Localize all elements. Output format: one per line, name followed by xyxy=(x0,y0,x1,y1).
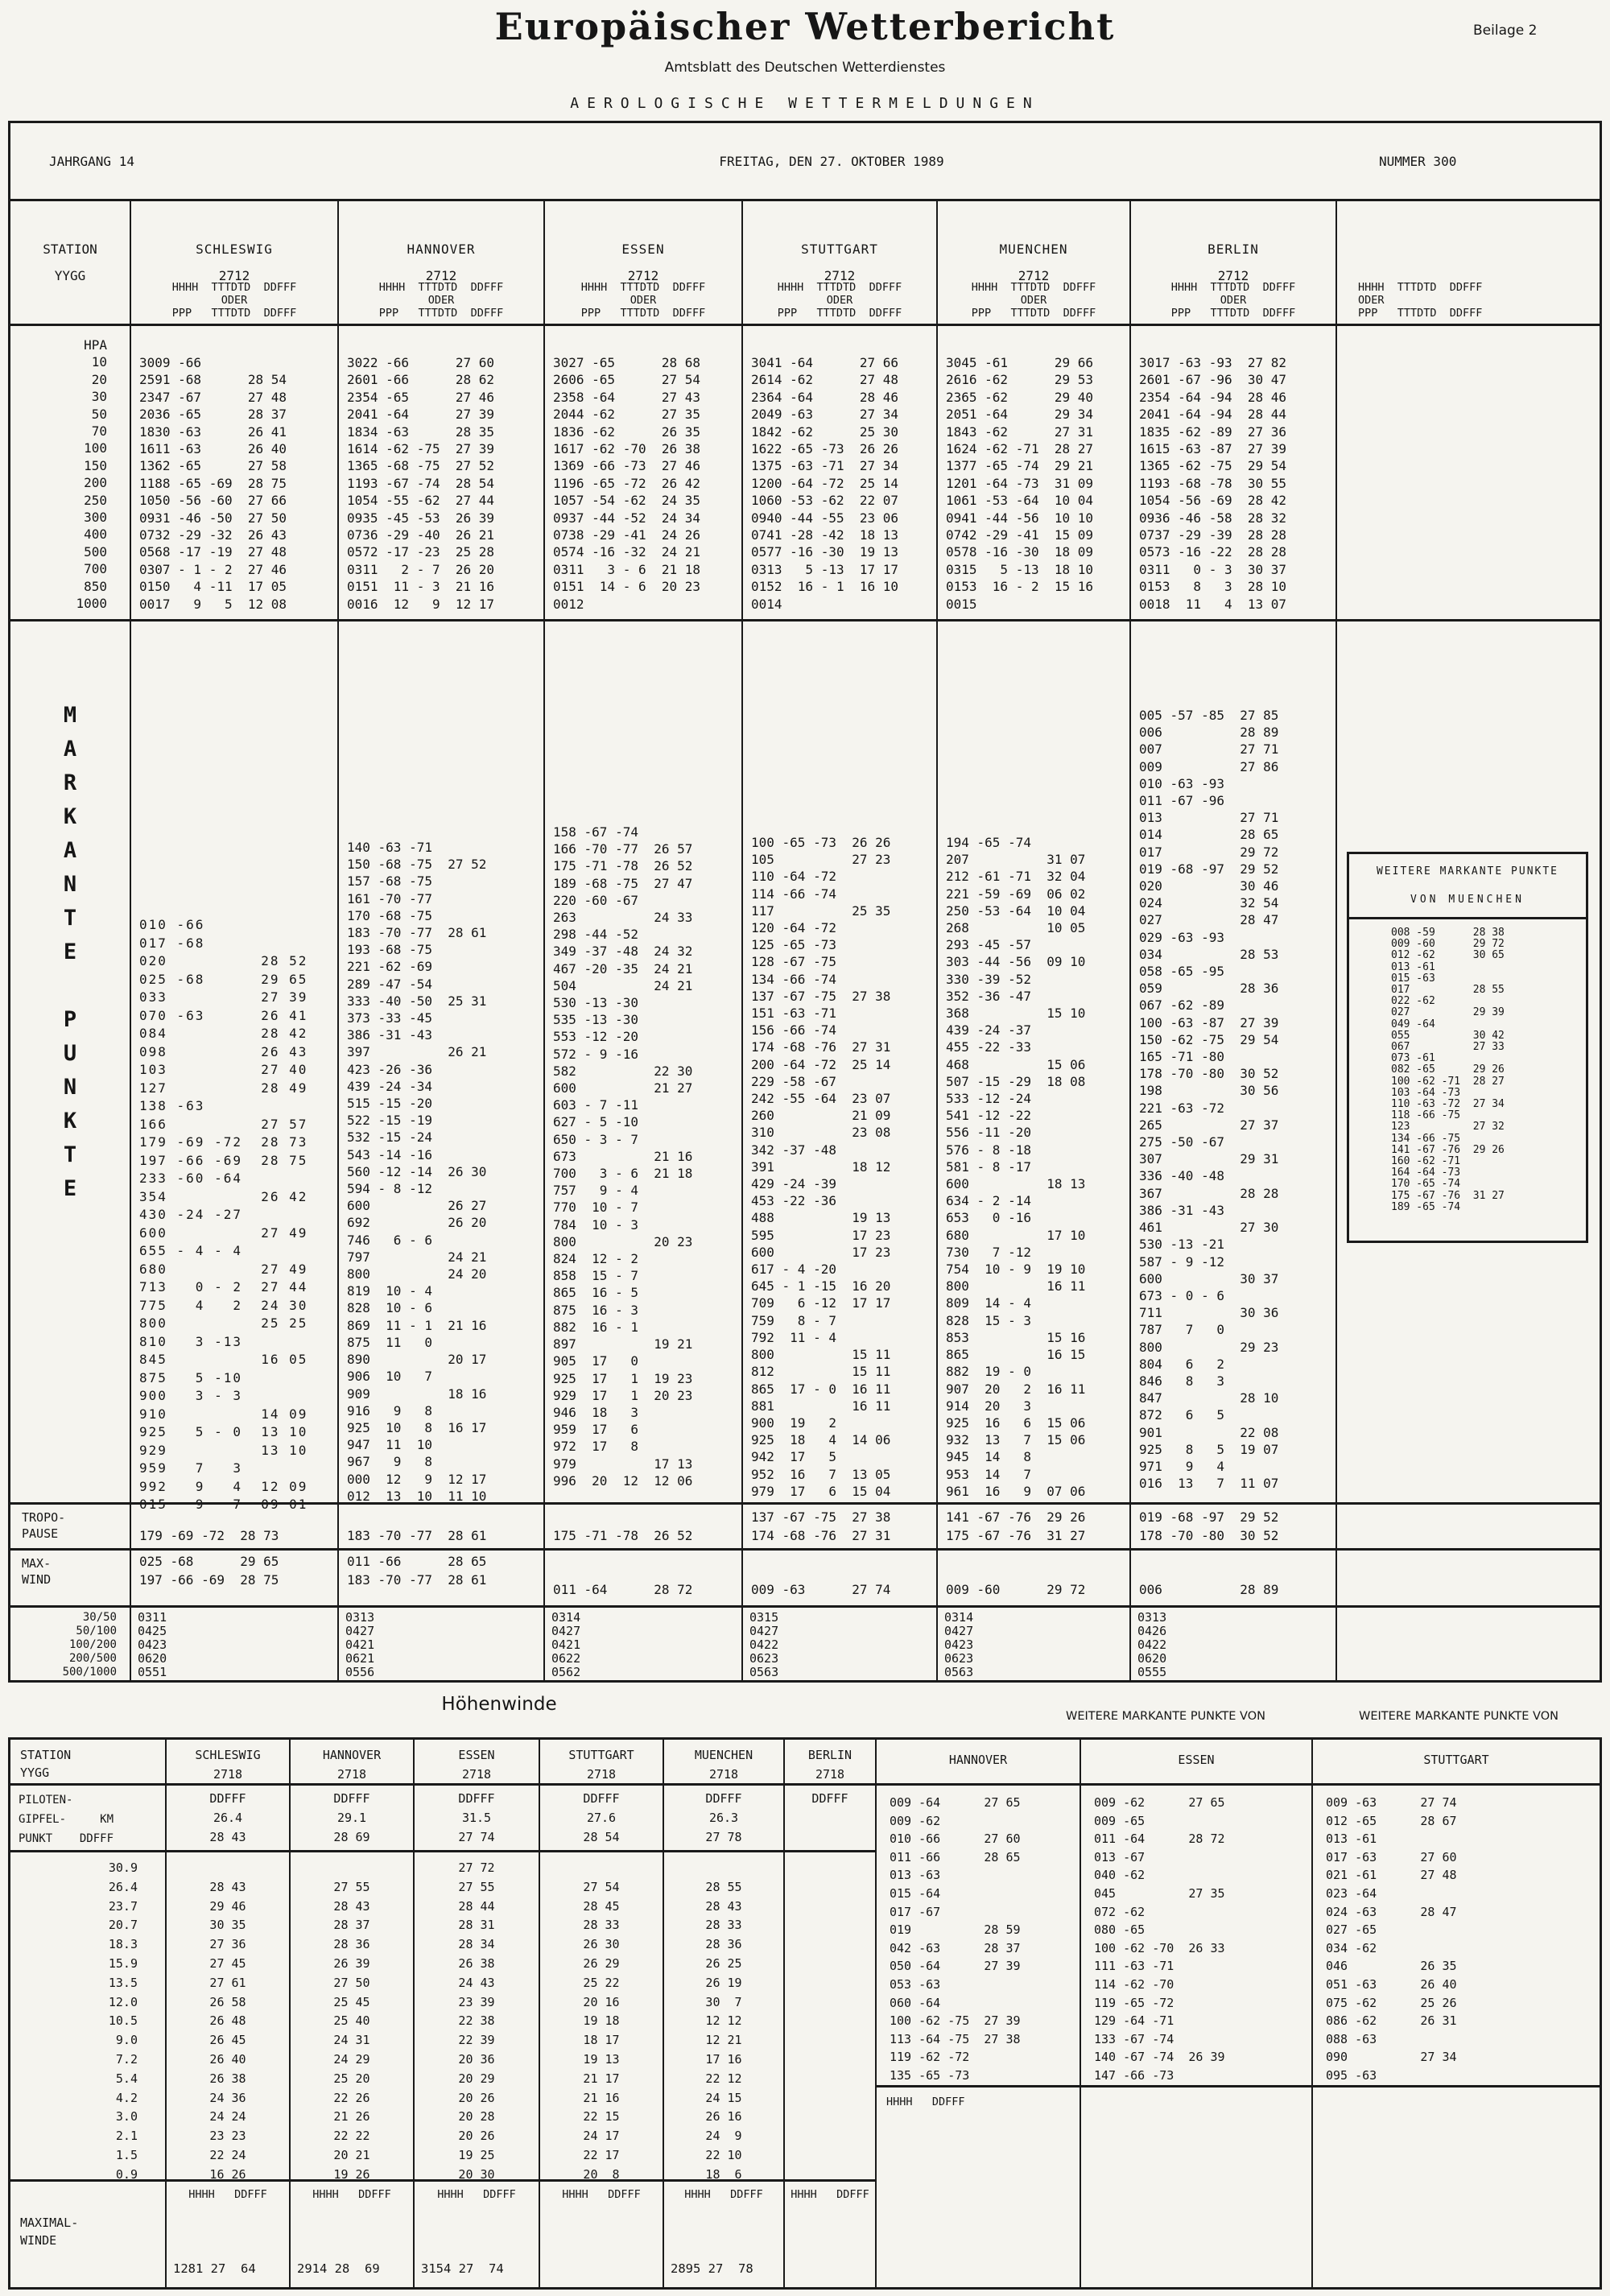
weitere-markante-von-label-1: WEITERE MARKANTE PUNKTE VON xyxy=(1066,1710,1265,1723)
station-header-row: STATION YYGG SCHLESWIG 2712 HHHH TTTDTD … xyxy=(10,199,1600,324)
column-subheader: HHHH TTTDTD DDFFFODERPPP TTTDTD DDFFF xyxy=(1337,281,1610,320)
station-name: STUTTGART xyxy=(1313,1740,1600,1767)
page-title: Europäischer Wetterbericht xyxy=(0,5,1610,48)
wind-values: 27 54 28 45 28 33 26 30 26 29 25 22 20 1… xyxy=(540,1852,663,2185)
pressure-data-hannover: 3022 -66 27 60 2601 -66 28 62 2354 -65 2… xyxy=(339,326,545,619)
hoehenwinde-col-muenchen: MUENCHEN 2718 DDFFF 26.3 27 78 28 55 28 … xyxy=(664,1740,785,2287)
pressure-data-muenchen: 3045 -61 29 66 2616 -62 29 53 2365 -62 2… xyxy=(938,326,1131,619)
tropopause-berlin: 019 -68 -97 29 52 178 -70 -80 30 52 xyxy=(1131,1505,1337,1548)
maxwind-essen: 011 -64 28 72 xyxy=(545,1551,743,1605)
aerological-report-table: JAHRGANG 14 FREITAG, DEN 27. OKTOBER 198… xyxy=(8,121,1602,1683)
wmp-data: 009 -62 27 65 009 -65 011 -64 28 72 013 … xyxy=(1081,1786,1311,2085)
pressure-levels-row: HPA 10 20 30 50 70 100 150 200 250 300 4… xyxy=(10,324,1600,619)
hoehenwinde-table: STATION YYGG PILOTEN- GIPFEL- KM PUNKT D… xyxy=(8,1737,1602,2290)
pressure-data-essen: 3027 -65 28 68 2606 -65 27 54 2358 -64 2… xyxy=(545,326,743,619)
markante-data-berlin: 005 -57 -85 27 85 006 28 89 007 27 71 00… xyxy=(1131,621,1337,1502)
station-name: STUTTGART xyxy=(540,1740,663,1762)
column-subheader: HHHH TTTDTD DDFFFODERPPP TTTDTD DDFFF xyxy=(938,281,1129,320)
gipfelpunkt-values: DDFFF xyxy=(785,1786,875,1808)
hoehenwinde-label-column: STATION YYGG PILOTEN- GIPFEL- KM PUNKT D… xyxy=(10,1740,167,2287)
station-header-berlin: BERLIN 2712 HHHH TTTDTD DDFFFODERPPP TTT… xyxy=(1131,201,1337,324)
gipfelpunkt-values: DDFFF 26.4 28 43 xyxy=(167,1786,289,1847)
station-header-label-cell: STATION YYGG xyxy=(10,201,131,324)
gipfelpunkt-values: DDFFF 26.3 27 78 xyxy=(664,1786,783,1847)
station-header-extra: HHHH TTTDTD DDFFFODERPPP TTTDTD DDFFF xyxy=(1337,201,1600,324)
column-subheader: HHHH TTTDTD DDFFFODERPPP TTTDTD DDFFF xyxy=(131,281,337,320)
hoehenwinde-col-berlin: BERLIN 2718 DDFFF HHHH DDFFF xyxy=(785,1740,877,2287)
hhhh-ddfff-header: HHHH DDFFF xyxy=(664,2188,783,2201)
maxwind-schleswig: 025 -68 29 65 197 -66 -69 28 75 xyxy=(131,1551,339,1605)
wind-values xyxy=(785,1852,875,2166)
wmp-box-title: WEITERE MARKANTE PUNKTE xyxy=(1349,865,1586,878)
hhhh-ddfff-header: HHHH DDFFF xyxy=(785,2188,875,2201)
station-name: HANNOVER xyxy=(877,1740,1080,1767)
scanned-weather-bulletin: Europäischer Wetterbericht Amtsblatt des… xyxy=(0,0,1610,2296)
hhhh-ddfff-header: HHHH DDFFF xyxy=(167,2188,289,2201)
ratio-essen: 0314 0427 0421 0622 0562 xyxy=(545,1608,743,1680)
nummer-label: NUMMER 300 xyxy=(1379,154,1456,169)
maxwind-empty xyxy=(1337,1551,1600,1605)
tropopause-schleswig: 179 -69 -72 28 73 xyxy=(131,1505,339,1548)
station-name: HANNOVER xyxy=(339,242,543,257)
hpa-levels: HPA 10 20 30 50 70 100 150 200 250 300 4… xyxy=(10,326,130,613)
maxwind-stuttgart: 009 -63 27 74 xyxy=(743,1551,938,1605)
pressure-data-schleswig: 3009 -66 2591 -68 28 54 2347 -67 27 48 2… xyxy=(131,326,339,619)
ratio-row: 30/50 50/100 100/200 200/500 500/1000 03… xyxy=(10,1605,1600,1680)
wmp-col-essen: ESSEN 009 -62 27 65 009 -65 011 -64 28 7… xyxy=(1081,1740,1313,2287)
attachment-badge: Beilage 2 xyxy=(1473,23,1537,39)
hoehenwinde-col-essen: ESSEN 2718 DDFFF 31.5 27 74 27 72 27 55 … xyxy=(415,1740,540,2287)
station-name: HANNOVER xyxy=(291,1740,413,1762)
tropopause-stuttgart: 137 -67 -75 27 38 174 -68 -76 27 31 xyxy=(743,1505,938,1548)
ratio-hannover: 0313 0427 0421 0621 0556 xyxy=(339,1608,545,1680)
tropopause-essen: 175 -71 -78 26 52 xyxy=(545,1505,743,1548)
column-subheader: HHHH TTTDTD DDFFFODERPPP TTTDTD DDFFF xyxy=(339,281,543,320)
wmp-data: 009 -64 27 65 009 -62 010 -66 27 60 011 … xyxy=(877,1786,1080,2085)
hhhh-ddfff-header: HHHH DDFFF xyxy=(415,2188,539,2201)
markante-punkte-label-cell: M A R K A N T E P U N K T E xyxy=(10,621,131,1502)
station-name: SCHLESWIG xyxy=(131,242,337,257)
date-label: FREITAG, DEN 27. OKTOBER 1989 xyxy=(719,154,943,169)
station-yygg: 2718 xyxy=(291,1762,413,1782)
ratio-stuttgart: 0315 0427 0422 0623 0563 xyxy=(743,1608,938,1680)
info-bar: JAHRGANG 14 FREITAG, DEN 27. OKTOBER 198… xyxy=(10,123,1600,199)
tropopause-label-cell: TROPO- PAUSE xyxy=(10,1505,131,1548)
station-header-hannover: HANNOVER 2712 HHHH TTTDTD DDFFFODERPPP T… xyxy=(339,201,545,324)
station-label: STATION xyxy=(10,242,130,257)
wind-values: 27 72 27 55 28 44 28 31 28 34 26 38 24 4… xyxy=(415,1852,539,2185)
markante-data-muenchen: 194 -65 -74 207 31 07 212 -61 -71 32 04 … xyxy=(938,621,1131,1502)
pressure-data-empty xyxy=(1337,326,1600,619)
station-yygg: 2718 xyxy=(664,1762,783,1782)
markante-data-schleswig: 010 -66 017 -68 020 28 52 025 -68 29 65 … xyxy=(131,621,339,1502)
maxwind-label-cell: MAX- WIND xyxy=(10,1551,131,1605)
wmp-box-data: 008 -59 28 38 009 -60 29 72 012 -62 30 6… xyxy=(1349,919,1586,1213)
hpa-level-column: HPA 10 20 30 50 70 100 150 200 250 300 4… xyxy=(10,326,131,619)
station-header-muenchen: MUENCHEN 2712 HHHH TTTDTD DDFFFODERPPP T… xyxy=(938,201,1131,324)
hhhh-ddfff-header: HHHH DDFFF xyxy=(886,2096,965,2108)
markante-data-essen: 158 -67 -74 166 -70 -77 26 57 175 -71 -7… xyxy=(545,621,743,1502)
hoehenwinde-col-hannover: HANNOVER 2718 DDFFF 29.1 28 69 27 55 28 … xyxy=(291,1740,415,2287)
markante-data-hannover: 140 -63 -71 150 -68 -75 27 52 157 -68 -7… xyxy=(339,621,545,1502)
station-name: SCHLESWIG xyxy=(167,1740,289,1762)
weitere-markante-von-label-2: WEITERE MARKANTE PUNKTE VON xyxy=(1359,1710,1558,1723)
station-yygg: 2718 xyxy=(785,1762,875,1782)
maximal-wind-value: 2914 28 69 xyxy=(297,2261,380,2276)
station-name: ESSEN xyxy=(545,242,741,257)
gipfelpunkt-values: DDFFF 29.1 28 69 xyxy=(291,1786,413,1847)
jahrgang-label: JAHRGANG 14 xyxy=(49,154,134,169)
pressure-data-stuttgart: 3041 -64 27 66 2614 -62 27 48 2364 -64 2… xyxy=(743,326,938,619)
yygg-label: YYGG xyxy=(10,268,130,283)
tropopause-empty xyxy=(1337,1505,1600,1548)
maxwind-hannover: 011 -66 28 65 183 -70 -77 28 61 xyxy=(339,1551,545,1605)
maxwind-row: MAX- WIND 025 -68 29 65 197 -66 -69 28 7… xyxy=(10,1548,1600,1605)
tropopause-muenchen: 141 -67 -76 29 26 175 -67 -76 31 27 xyxy=(938,1505,1131,1548)
ratio-muenchen: 0314 0427 0423 0623 0563 xyxy=(938,1608,1131,1680)
station-name: MUENCHEN xyxy=(938,242,1129,257)
ratio-label-cell: 30/50 50/100 100/200 200/500 500/1000 xyxy=(10,1608,131,1680)
gipfelpunkt-values: DDFFF 31.5 27 74 xyxy=(415,1786,539,1847)
column-subheader: HHHH TTTDTD DDFFFODERPPP TTTDTD DDFFF xyxy=(545,281,741,320)
wind-values: 28 43 29 46 30 35 27 36 27 45 27 61 26 5… xyxy=(167,1852,289,2185)
weitere-markante-muenchen-box: WEITERE MARKANTE PUNKTE VON MUENCHEN 008… xyxy=(1347,852,1588,1243)
wmp-box-subtitle: VON MUENCHEN xyxy=(1349,894,1586,906)
markante-punkte-row: M A R K A N T E P U N K T E 010 -66 017 … xyxy=(10,619,1600,1502)
ratio-berlin: 0313 0426 0422 0620 0555 xyxy=(1131,1608,1337,1680)
wmp-col-stuttgart: STUTTGART 009 -63 27 74 012 -65 28 67 01… xyxy=(1313,1740,1600,2287)
station-yygg: 2718 xyxy=(415,1762,539,1782)
maximal-wind-value: 3154 27 74 xyxy=(421,2261,504,2276)
maxwind-berlin: 006 28 89 xyxy=(1131,1551,1337,1605)
maximal-wind-value: 1281 27 64 xyxy=(173,2261,256,2276)
station-header-essen: ESSEN 2712 HHHH TTTDTD DDFFFODERPPP TTTD… xyxy=(545,201,743,324)
piloten-gipfelpunkt-label: PILOTEN- GIPFEL- KM PUNKT DDFFF xyxy=(10,1783,165,1850)
maximal-winde-label: MAXIMAL- WINDE xyxy=(10,2179,165,2287)
wmp-data: 009 -63 27 74 012 -65 28 67 013 -61 017 … xyxy=(1313,1786,1600,2085)
tropopause-row: TROPO- PAUSE 179 -69 -72 28 73 183 -70 -… xyxy=(10,1502,1600,1548)
markante-data-stuttgart: 100 -65 -73 26 26 105 27 23 110 -64 -72 … xyxy=(743,621,938,1502)
tropopause-hannover: 183 -70 -77 28 61 xyxy=(339,1505,545,1548)
station-name: BERLIN xyxy=(785,1740,875,1762)
hoehenwinde-title: Höhenwinde xyxy=(441,1694,556,1715)
markante-punkte-vertical-label: M A R K A N T E P U N K T E xyxy=(10,699,130,1206)
station-name: ESSEN xyxy=(1081,1740,1311,1767)
station-name: ESSEN xyxy=(415,1740,539,1762)
hhhh-ddfff-header: HHHH DDFFF xyxy=(540,2188,663,2201)
wmp-col-hannover: HANNOVER 009 -64 27 65 009 -62 010 -66 2… xyxy=(877,1740,1081,2287)
station-header-stuttgart: STUTTGART 2712 HHHH TTTDTD DDFFFODERPPP … xyxy=(743,201,938,324)
hhhh-ddfff-header: HHHH DDFFF xyxy=(291,2188,413,2201)
km-column: 30.9 26.4 23.7 20.7 18.3 15.9 13.5 12.0 … xyxy=(10,1850,165,2179)
station-name: BERLIN xyxy=(1131,242,1335,257)
gipfelpunkt-values: DDFFF 27.6 28 54 xyxy=(540,1786,663,1847)
pressure-data-berlin: 3017 -63 -93 27 82 2601 -67 -96 30 47 23… xyxy=(1131,326,1337,619)
weitere-markante-column: WEITERE MARKANTE PUNKTE VON MUENCHEN 008… xyxy=(1337,621,1600,1502)
page-subtitle: Amtsblatt des Deutschen Wetterdienstes xyxy=(0,60,1610,76)
ratio-empty xyxy=(1337,1608,1600,1680)
column-subheader: HHHH TTTDTD DDFFFODERPPP TTTDTD DDFFF xyxy=(743,281,936,320)
wind-values: 28 55 28 43 28 33 28 36 26 25 26 19 30 7… xyxy=(664,1852,783,2185)
station-yygg: 2718 xyxy=(167,1762,289,1782)
section-heading: AEROLOGISCHE WETTERMELDUNGEN xyxy=(0,95,1610,112)
hoehenwinde-col-stuttgart: STUTTGART 2718 DDFFF 27.6 28 54 27 54 28… xyxy=(540,1740,664,2287)
ratio-schleswig: 0311 0425 0423 0620 0551 xyxy=(131,1608,339,1680)
station-yygg: 2718 xyxy=(540,1762,663,1782)
wind-values: 27 55 28 43 28 37 28 36 26 39 27 50 25 4… xyxy=(291,1852,413,2185)
maxwind-muenchen: 009 -60 29 72 xyxy=(938,1551,1131,1605)
hoehenwinde-col-schleswig: SCHLESWIG 2718 DDFFF 26.4 28 43 28 43 29… xyxy=(167,1740,291,2287)
bottom-station-label-cell: STATION YYGG xyxy=(10,1740,165,1783)
station-header-schleswig: SCHLESWIG 2712 HHHH TTTDTD DDFFFODERPPP … xyxy=(131,201,339,324)
column-subheader: HHHH TTTDTD DDFFFODERPPP TTTDTD DDFFF xyxy=(1131,281,1335,320)
maximal-wind-value: 2895 27 78 xyxy=(671,2261,753,2276)
station-name: MUENCHEN xyxy=(664,1740,783,1762)
station-name: STUTTGART xyxy=(743,242,936,257)
